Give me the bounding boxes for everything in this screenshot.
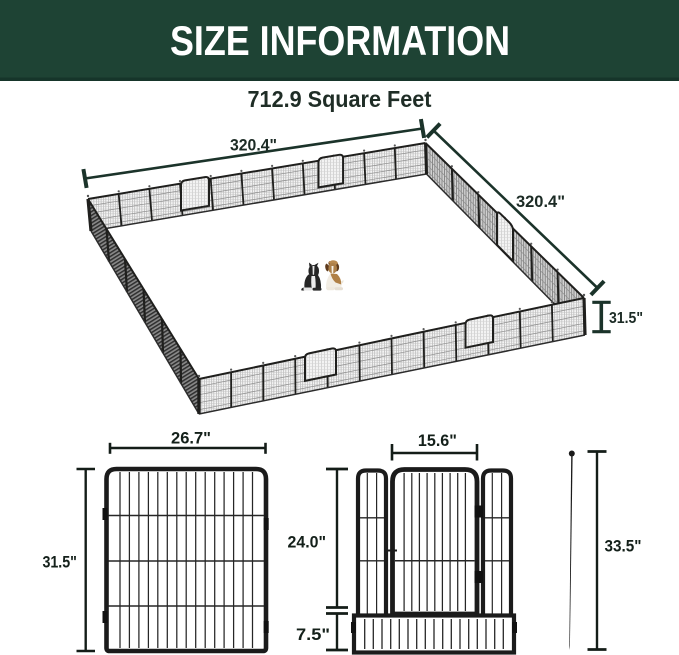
svg-text:712.9 Square Feet: 712.9 Square Feet: [248, 86, 432, 112]
svg-text:320.4": 320.4": [516, 192, 565, 211]
svg-text:31.5": 31.5": [42, 554, 77, 572]
svg-text:15.6": 15.6": [418, 432, 457, 450]
svg-text:320.4": 320.4": [230, 137, 277, 155]
svg-text:SIZE INFORMATION: SIZE INFORMATION: [170, 17, 510, 64]
svg-text:26.7": 26.7": [171, 430, 211, 448]
svg-text:33.5": 33.5": [605, 538, 642, 556]
svg-text:31.5": 31.5": [609, 310, 643, 327]
svg-text:7.5": 7.5": [296, 626, 330, 644]
svg-text:24.0": 24.0": [288, 534, 327, 552]
